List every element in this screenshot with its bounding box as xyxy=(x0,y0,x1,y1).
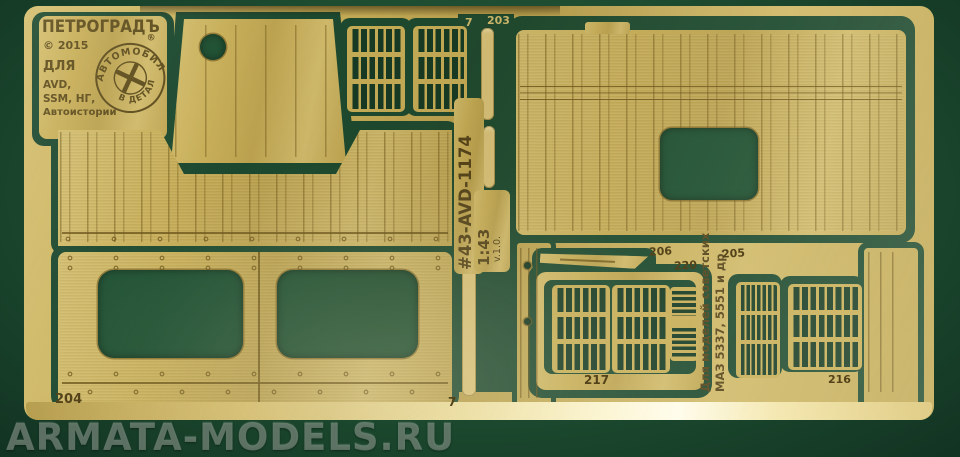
part-number-205: 205 xyxy=(722,247,746,259)
bed-side-panel-204 xyxy=(58,252,452,414)
application-line-2: МАЗ 5337, 5551 и др. xyxy=(713,249,727,392)
part-number-206: 206 xyxy=(649,245,673,257)
version-text: v.1.0. xyxy=(492,204,503,262)
grille-205 xyxy=(736,282,780,378)
stamp-reg-mark: ® xyxy=(146,32,158,44)
part-number-217: 217 xyxy=(584,374,609,386)
part-number-220: 220 xyxy=(674,259,698,271)
grille-216 xyxy=(788,284,862,370)
part-number-204: 204 xyxy=(55,393,82,406)
rivet-row xyxy=(64,235,446,244)
step-plate-220 xyxy=(670,287,698,361)
etch-line xyxy=(62,232,448,234)
etch-line xyxy=(62,382,448,384)
etch-line xyxy=(560,259,615,263)
clients-line-1: AVD, xyxy=(43,80,71,91)
window-cutout-right xyxy=(660,128,758,200)
roof-hole-cutout xyxy=(200,34,226,60)
part-number-7-top: 7 xyxy=(465,17,473,28)
scale-text: 1:43 xyxy=(475,198,493,266)
window-cutout-2 xyxy=(277,270,418,358)
application-line-1: Для моделей советских xyxy=(698,233,712,392)
copyright-text: © 2015 xyxy=(43,40,88,51)
set-code-text: #43-AVD-1174 xyxy=(456,102,475,270)
strip-hole xyxy=(524,318,531,325)
watermark-text: ARMATA-MODELS.RU xyxy=(6,416,455,457)
radiator-grille-217a xyxy=(552,285,610,373)
frame-strip-lines xyxy=(868,252,904,392)
application-text: Для моделей советских МАЗ 5337, 5551 и д… xyxy=(698,250,728,392)
wiper-part-mid xyxy=(483,126,495,188)
hinge-band xyxy=(520,86,902,100)
cab-roof-panel xyxy=(171,19,346,163)
maker-plate: ПЕТРОГРАДЪ © 2015 ДЛЯ AVD, SSM, НГ, Авто… xyxy=(39,16,167,139)
bed-side-panel-right xyxy=(516,30,906,235)
strip-hole xyxy=(524,262,531,269)
rivet-row xyxy=(66,388,444,397)
window-cutout-1 xyxy=(98,270,243,358)
for-label: ДЛЯ xyxy=(43,60,75,73)
part-number-7-bottom: 7 xyxy=(448,396,456,408)
part-number-216: 216 xyxy=(828,374,851,385)
part-number-203: 203 xyxy=(487,15,510,26)
crossed-tools-icon xyxy=(118,65,144,91)
radiator-grille-217b xyxy=(612,285,670,373)
vent-grille-top-1 xyxy=(347,26,405,112)
clients-line-2: SSM, НГ, xyxy=(43,94,95,105)
rivet-row xyxy=(66,254,444,263)
photo-background: ПЕТРОГРАДЪ © 2015 ДЛЯ AVD, SSM, НГ, Авто… xyxy=(0,0,960,457)
rivet-row xyxy=(66,370,444,379)
panel-tab xyxy=(585,22,630,34)
